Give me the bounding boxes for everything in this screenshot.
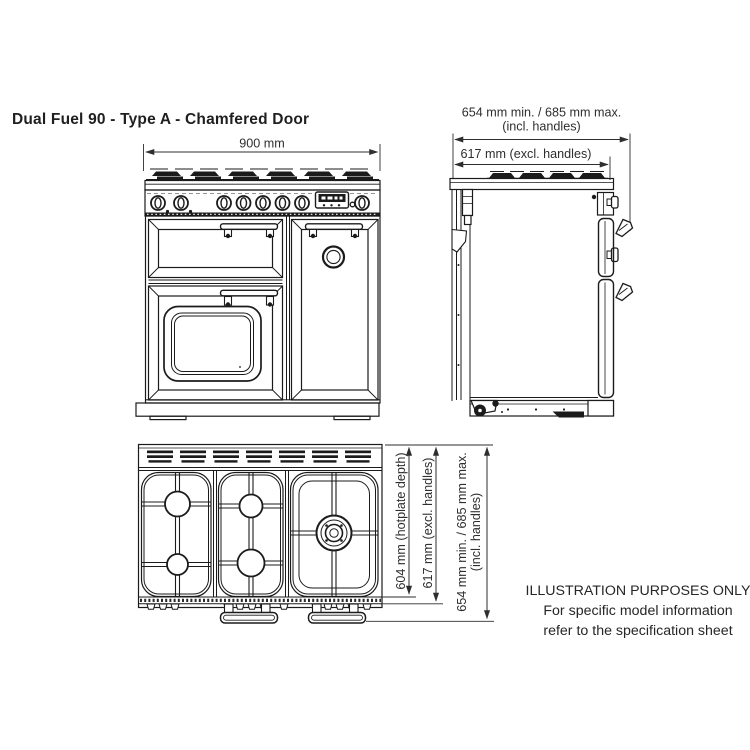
caster-wheel (471, 400, 503, 416)
top-hotplate-depth-label: 604 mm (hotplate depth) (394, 452, 408, 589)
wok-burner (317, 516, 352, 551)
disclaimer-text: ILLUSTRATION PURPOSES ONLY For specific … (524, 581, 750, 641)
burner (238, 550, 265, 577)
gas-inlet-pipe (463, 190, 473, 225)
spec-sheet-page: Dual Fuel 90 - Type A - Chamfered Door 9… (0, 0, 750, 750)
rear-vents (147, 451, 371, 463)
top-view-drawing: 604 mm (hotplate depth) 617 mm (excl. ha… (139, 445, 495, 624)
front-width-dimension-label: 900 mm (239, 137, 285, 151)
oven-door-window (164, 307, 261, 382)
hob-section-left (142, 473, 212, 597)
hob-section-right (291, 473, 379, 597)
front-view-drawing: 900 mm (136, 137, 380, 420)
side-view-drawing: 654 mm min. / 685 mm max. (incl. handles… (450, 106, 633, 418)
right-door (292, 220, 379, 401)
disclaimer-line-2: For specific model information (524, 601, 750, 621)
disclaimer-line-3: refer to the specification sheet (524, 621, 750, 641)
side-depth-incl-handles-label: 654 mm min. / 685 mm max. (462, 106, 622, 120)
door-emblem (323, 247, 344, 268)
clock-display (316, 192, 349, 208)
side-incl-handles-note: (incl. handles) (502, 120, 580, 134)
front-plinth (136, 403, 379, 416)
front-pan-supports (152, 172, 373, 180)
front-edge-clips (147, 604, 371, 609)
grill-door (149, 220, 283, 278)
burner (165, 492, 190, 517)
top-depth-excl-handles-label: 617 mm (excl. handles) (421, 458, 435, 589)
burner (240, 495, 263, 518)
top-incl-handles-note: (incl. handles) (469, 493, 483, 571)
disclaimer-line-1: ILLUSTRATION PURPOSES ONLY (524, 581, 750, 601)
main-oven-door (149, 286, 283, 400)
hob-section-middle (219, 473, 284, 597)
side-depth-excl-handles-label: 617 mm (excl. handles) (461, 147, 592, 161)
top-depth-incl-handles-label: 654 mm min. / 685 mm max. (455, 452, 469, 612)
burner (167, 554, 188, 575)
